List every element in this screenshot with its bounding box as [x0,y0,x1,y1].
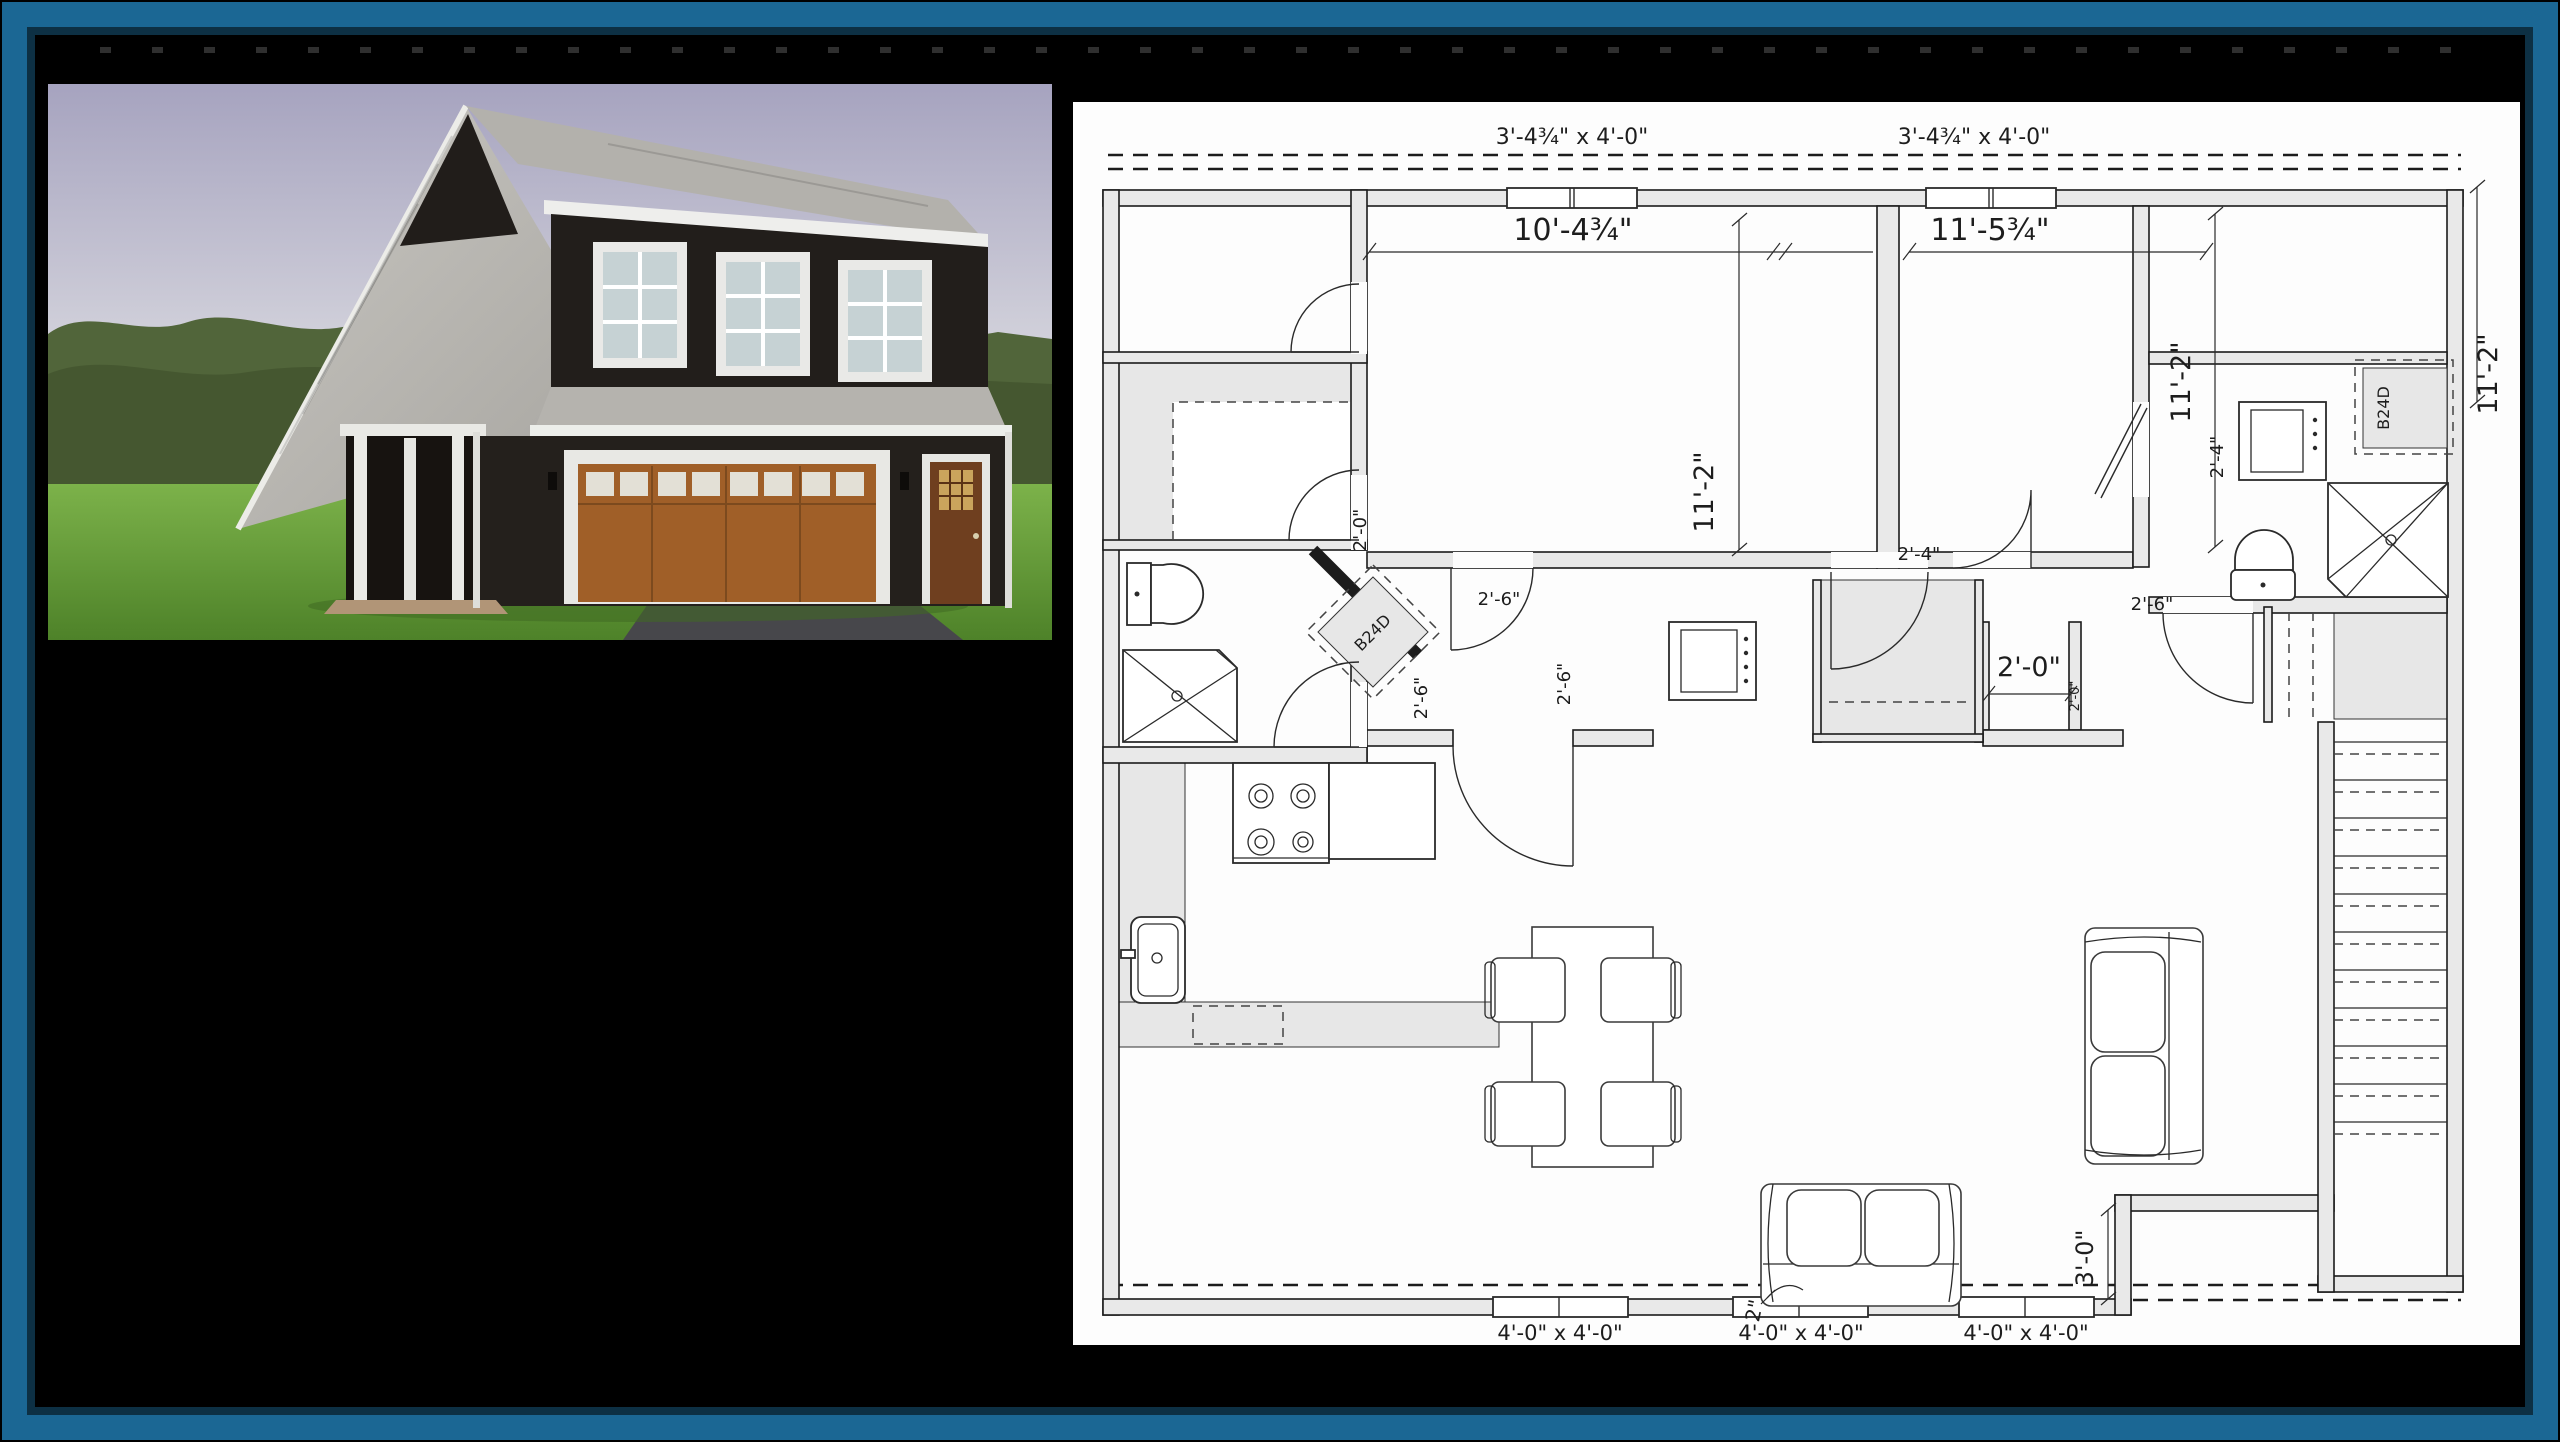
dining-chair [1485,958,1565,1022]
dim-win-bottom-3: 4'-0" x 4'-0" [1963,1321,2088,1345]
wall-sconce [900,472,909,490]
toilet-symbol-1 [1127,563,1203,625]
base-cabinet [1329,763,1435,859]
walls [1103,190,2463,1315]
label-corner-cabinet-right: B24D [2374,386,2393,430]
porch-deck [324,600,508,614]
dormer-window-2 [716,252,810,376]
bottom-window-3 [1959,1297,2094,1317]
top-window-1 [1507,188,1637,208]
staircase [2334,742,2447,1134]
dim-bedroom2-depth: 11'-2" [2166,341,2197,422]
toilet-symbol-2 [2231,530,2295,600]
dormer-window-1 [593,242,687,368]
lower-roof-slope [535,387,1006,428]
corner-trim-left [473,432,480,608]
door-openings [1351,282,2253,747]
corner-trim-right [1005,432,1012,608]
slide-frame: 3'-4¾" x 4'-0" 3'-4¾" x 4'-0" 10'-4¾" 11… [0,0,2560,1442]
shower-symbol-2 [2328,483,2448,597]
stove-symbol [1233,763,1329,863]
dining-chair [1601,1082,1681,1146]
faint-dot-row [100,47,2460,53]
shower-symbol-1 [1123,650,1237,742]
dim-bath1-door: 2'-6" [1411,677,1432,720]
sofa-right [2085,928,2203,1164]
vanity-cabinet [2239,402,2326,480]
hall-appliance [1669,622,1756,700]
wall-sconce-2 [548,472,557,490]
dim-win-top-left: 3'-4¾" x 4'-0" [1496,125,1649,150]
corner-cabinet-box [2355,360,2453,454]
dining-chair [1601,958,1681,1022]
left-closet-inner [1173,402,1351,540]
dim-vestibule-width: 2'-0" [1997,652,2061,683]
dim-bedroom1-width: 10'-4¾" [1513,213,1632,248]
dim-closet-door: 2'-0" [1350,509,1371,552]
kitchen-door-swing [1453,746,1573,866]
dim-win-bottom-1: 4'-0" x 4'-0" [1497,1321,1622,1345]
dim-corner-jog: 3'-0" [2071,1230,2099,1287]
dim-vestibule-width-small: 2'-0" [2068,681,2083,712]
bathroom1 [1123,563,1440,742]
dining-set [1485,927,1681,1167]
dim-win-top-right: 3'-4¾" x 4'-0" [1898,125,2051,150]
stair-landing [2334,610,2447,719]
dim-wing-depth: 11'-2" [2473,333,2504,414]
open-room-door-swing [1291,284,1359,352]
house-render-graphic [48,84,1052,640]
bath1-door-swing [1274,662,1359,747]
dim-wing-door: 2'-4" [2207,436,2228,479]
dim-hall-closet-door: 2'-4" [1898,544,1941,565]
entry-door [922,454,990,604]
garage-door [564,450,890,604]
dim-bedroom1-depth: 11'-2" [1689,451,1720,532]
bath2-door-swing [2163,613,2253,703]
dim-win-bottom-2: 4'-0" x 4'-0" [1738,1321,1863,1345]
bathroom2 [2231,360,2453,600]
kitchen-sink-symbol [1121,917,1185,1003]
top-window-2 [1926,188,2056,208]
hall-closet-fill [1821,580,1975,734]
dim-bath2-door: 2'-6" [2131,594,2174,615]
bottom-window-1 [1493,1297,1628,1317]
dining-chair [1485,1082,1565,1146]
kitchen-peninsula [1119,1002,1499,1047]
sofa-bottom [1761,1184,1961,1306]
house-render-photo [48,84,1052,640]
dim-bedroom1-door: 2'-6" [1478,589,1521,610]
dim-kitchen-door: 2'-6" [1554,663,1575,706]
dim-bedroom2-width: 11'-5¾" [1930,213,2049,248]
floor-plan-sheet: 3'-4¾" x 4'-0" 3'-4¾" x 4'-0" 10'-4¾" 11… [1073,102,2520,1345]
floor-plan-graphic: 3'-4¾" x 4'-0" 3'-4¾" x 4'-0" 10'-4¾" 11… [1073,102,2520,1345]
dormer-window-3 [838,260,932,382]
